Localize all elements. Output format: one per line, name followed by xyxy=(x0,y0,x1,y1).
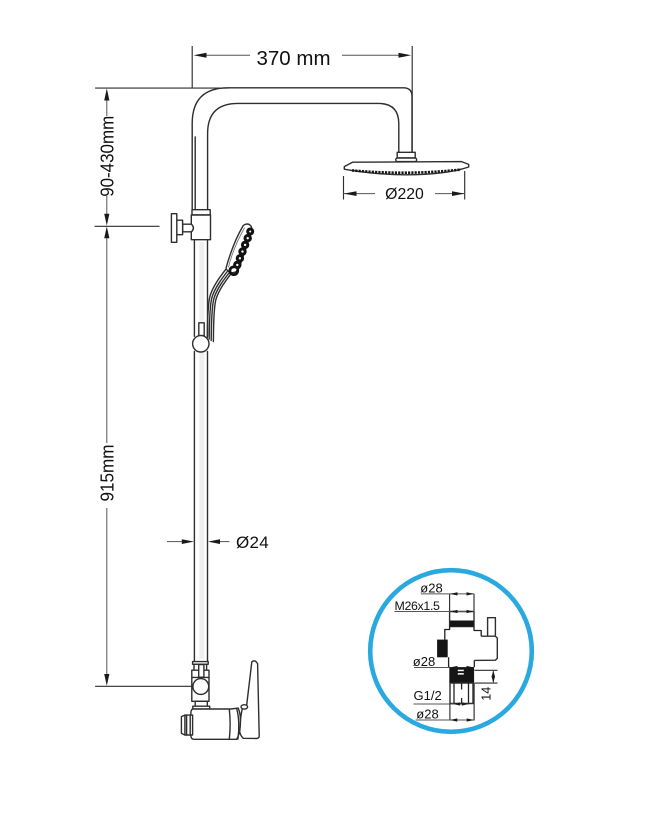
svg-text:915mm: 915mm xyxy=(97,445,118,502)
svg-text:14: 14 xyxy=(479,687,493,701)
svg-text:Ø220: Ø220 xyxy=(385,186,424,203)
svg-text:G1/2: G1/2 xyxy=(414,688,442,703)
svg-text:ø28: ø28 xyxy=(420,581,442,596)
svg-text:M26x1.5: M26x1.5 xyxy=(395,599,441,613)
svg-text:ø28: ø28 xyxy=(416,707,438,722)
svg-text:Ø24: Ø24 xyxy=(236,533,269,552)
svg-text:ø28: ø28 xyxy=(413,654,435,669)
svg-text:90-430mm: 90-430mm xyxy=(96,116,117,197)
svg-text:370 mm: 370 mm xyxy=(256,47,330,70)
